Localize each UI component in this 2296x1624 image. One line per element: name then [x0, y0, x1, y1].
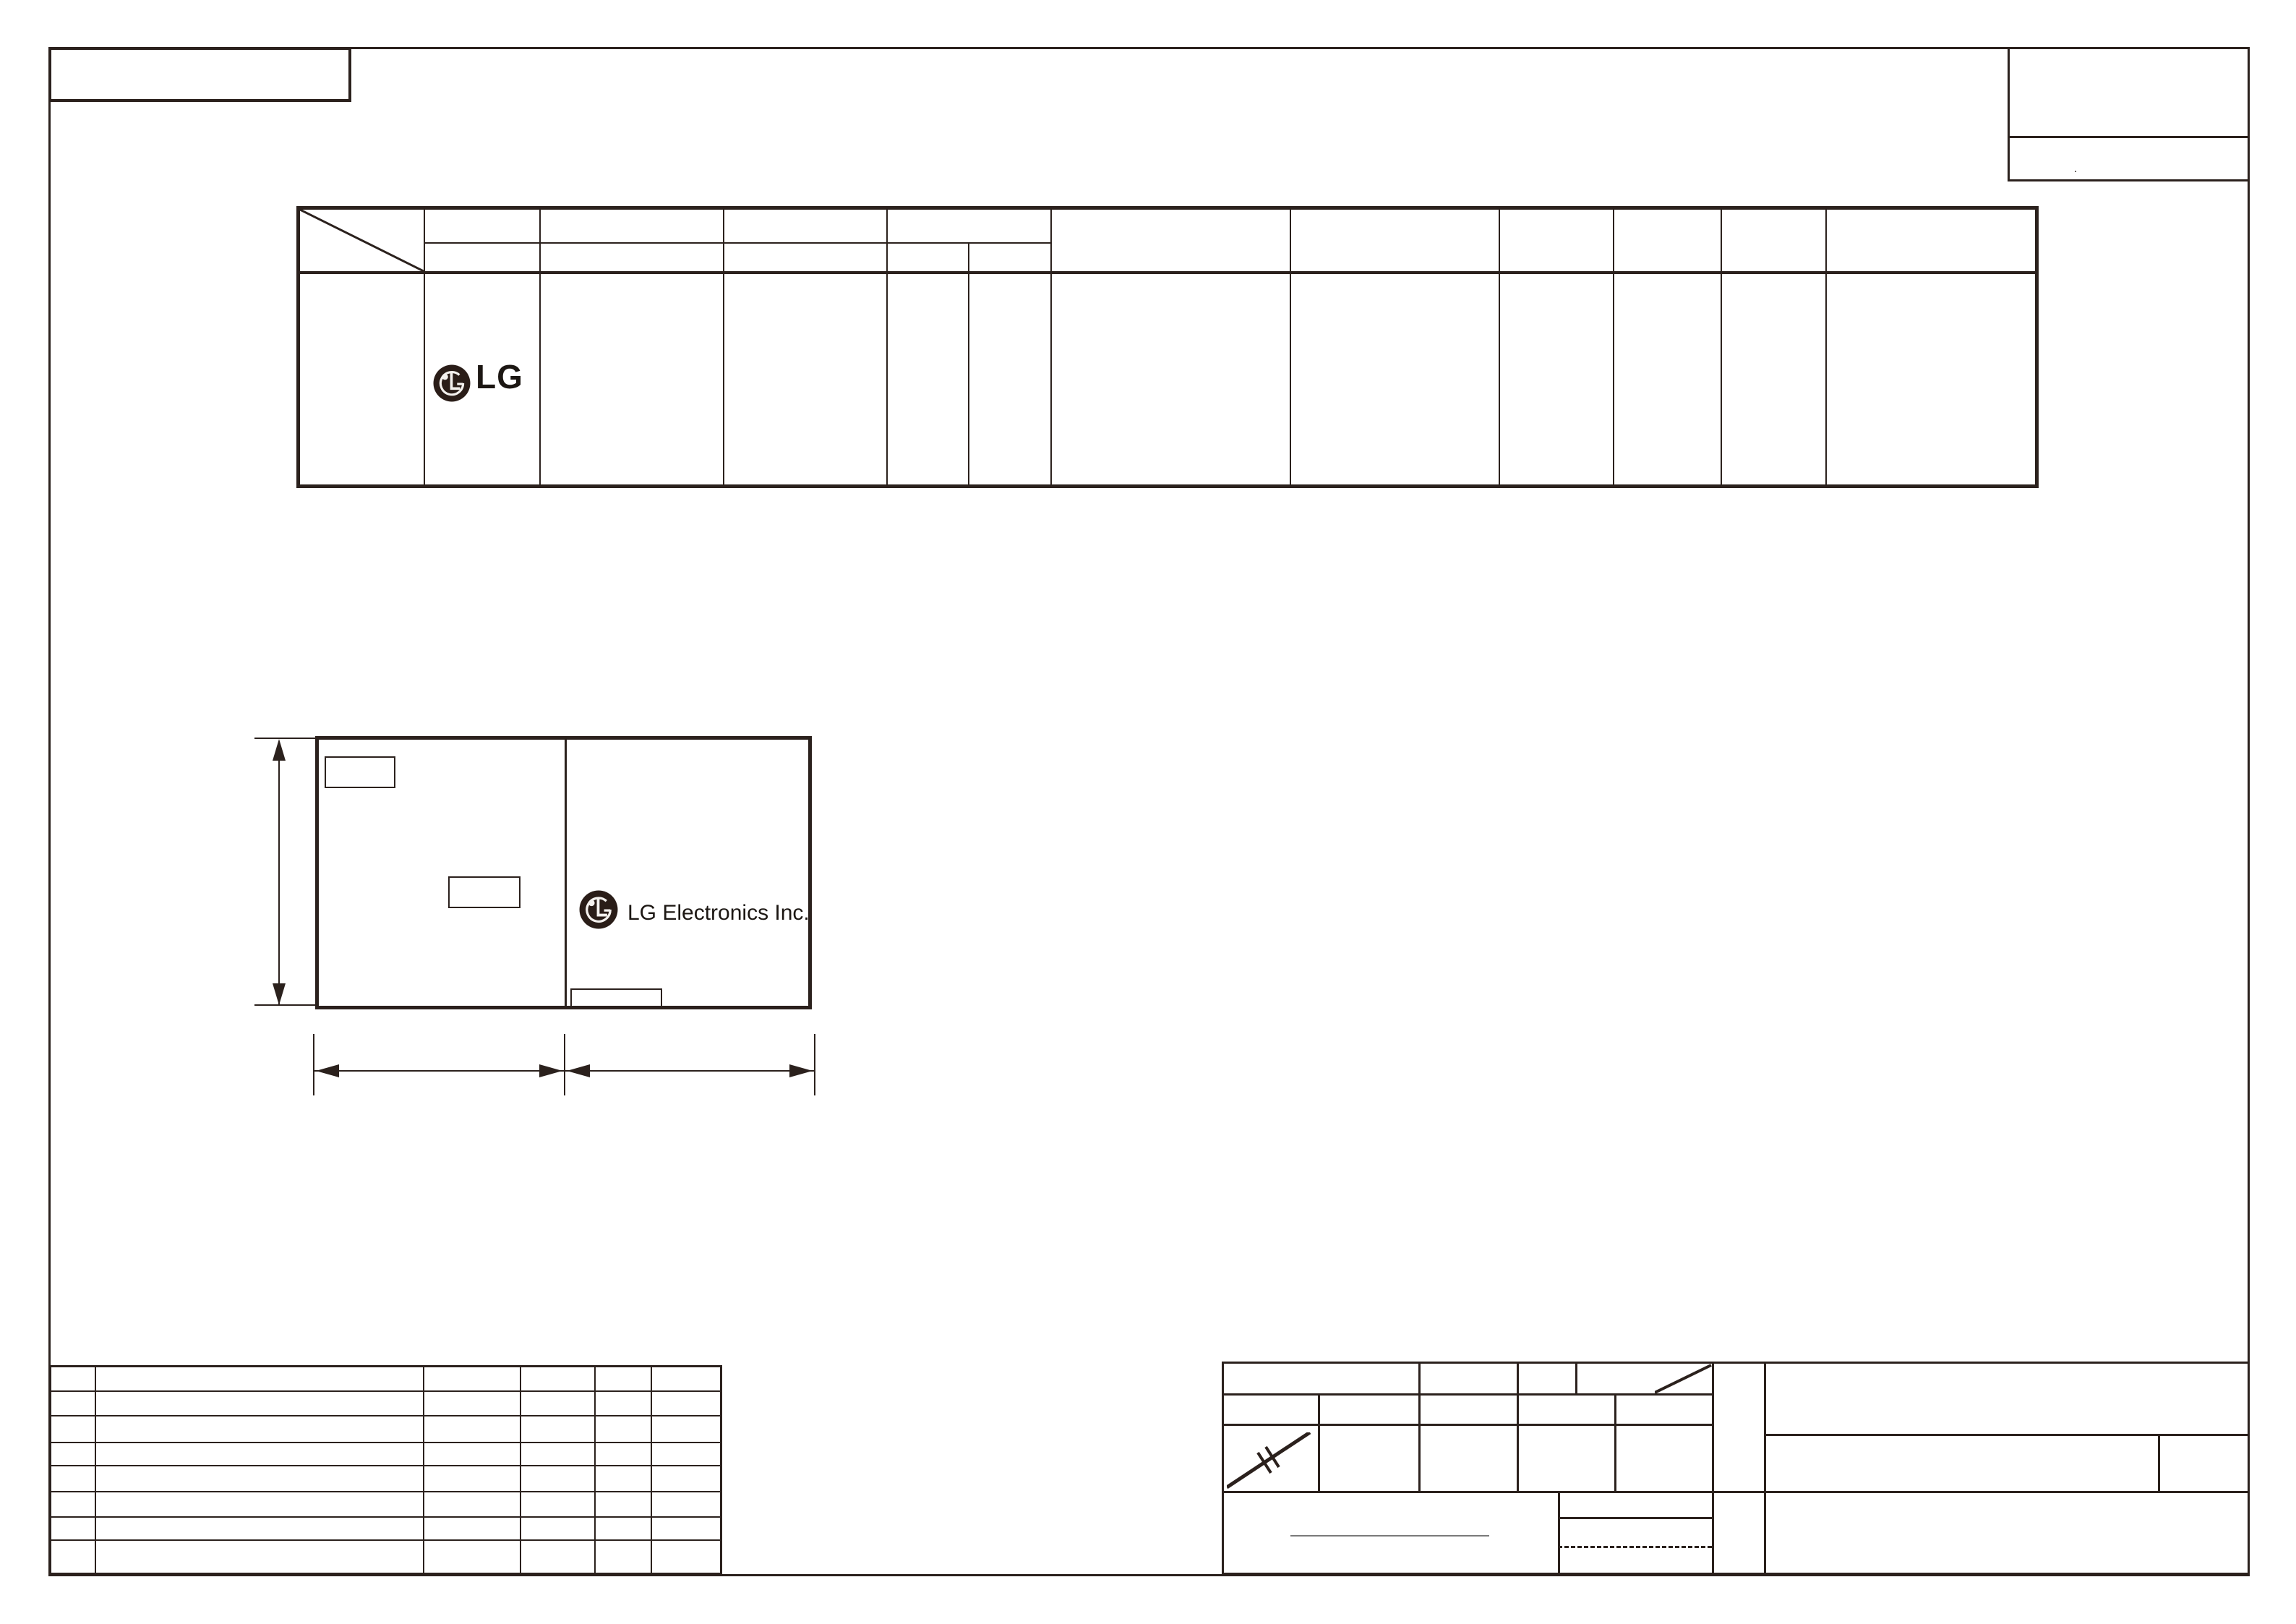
extension-tick	[254, 738, 318, 739]
label-divider	[565, 740, 567, 1006]
h-dimension-line	[565, 1070, 814, 1072]
title-block-line	[1558, 1491, 1560, 1573]
column-line	[520, 1367, 521, 1573]
column-line	[539, 210, 541, 484]
column-line-partial	[968, 242, 969, 484]
label-drawing: LG Electronics Inc.	[315, 736, 812, 1009]
top-right-box-divider	[2010, 136, 2248, 138]
title-block-line	[1614, 1393, 1616, 1491]
arrowhead-right	[789, 1064, 813, 1077]
column-line	[423, 1367, 424, 1573]
spec-table: LG	[296, 206, 2039, 488]
row-line	[51, 1539, 720, 1541]
v-dimension-line	[278, 741, 280, 1005]
lg-wordmark: LG	[476, 360, 523, 393]
row-line	[51, 1516, 720, 1518]
revision-table	[49, 1365, 722, 1575]
cell-diagonal	[1655, 1364, 1713, 1394]
title-block-line	[1712, 1364, 1714, 1573]
title-block-line	[1764, 1434, 2248, 1436]
row-line	[51, 1442, 720, 1443]
column-line	[424, 210, 425, 484]
row-line	[51, 1390, 720, 1392]
title-block-line	[1318, 1393, 1320, 1491]
lg-emblem-icon	[579, 890, 618, 929]
column-line	[1290, 210, 1291, 484]
extension-tick	[814, 1034, 815, 1095]
column-line	[95, 1367, 96, 1573]
header-diagonal	[300, 210, 424, 271]
top-left-box	[48, 47, 351, 102]
column-line	[1721, 210, 1722, 484]
title-block-line	[1575, 1364, 1577, 1393]
extension-tick	[313, 1034, 314, 1095]
title-block	[1222, 1362, 2250, 1575]
title-block-line	[1517, 1364, 1519, 1491]
label-field-box	[325, 756, 395, 788]
title-block-line	[1764, 1364, 1766, 1573]
header-bottom-line	[300, 271, 2035, 274]
column-line	[886, 210, 888, 484]
arrowhead-left	[567, 1064, 590, 1077]
title-block-dashed-line	[1558, 1546, 1712, 1548]
row-line	[51, 1491, 720, 1492]
column-line	[1825, 210, 1827, 484]
title-block-line	[1224, 1491, 2248, 1493]
column-line	[651, 1367, 652, 1573]
drawing-sheet: . LG	[0, 0, 2296, 1624]
lg-emblem-icon	[433, 364, 471, 402]
arrowhead-up	[273, 739, 286, 761]
row-line	[51, 1465, 720, 1466]
column-line	[594, 1367, 596, 1573]
extension-tick	[254, 1004, 318, 1006]
extension-tick	[564, 1034, 565, 1095]
projection-symbol	[1227, 1432, 1317, 1494]
label-field-box	[570, 988, 662, 1009]
stray-mark: .	[2074, 163, 2077, 175]
column-line	[1613, 210, 1614, 484]
title-block-line	[1558, 1517, 1712, 1519]
signature-underline	[1290, 1535, 1489, 1537]
arrowhead-right	[539, 1064, 562, 1077]
column-line	[1499, 210, 1500, 484]
row-line	[51, 1415, 720, 1416]
arrowhead-left	[316, 1064, 339, 1077]
arrowhead-down	[273, 983, 286, 1005]
title-block-line	[2158, 1434, 2160, 1493]
column-line	[723, 210, 724, 484]
label-field-box	[448, 876, 521, 908]
title-block-line	[1418, 1364, 1421, 1491]
top-right-box	[2008, 47, 2250, 181]
title-block-line	[1224, 1393, 1712, 1396]
column-line	[1050, 210, 1052, 484]
company-name: LG Electronics Inc.	[627, 902, 810, 924]
sub-header-line	[424, 242, 1050, 244]
h-dimension-line	[314, 1070, 564, 1072]
title-block-line	[1224, 1424, 1712, 1426]
